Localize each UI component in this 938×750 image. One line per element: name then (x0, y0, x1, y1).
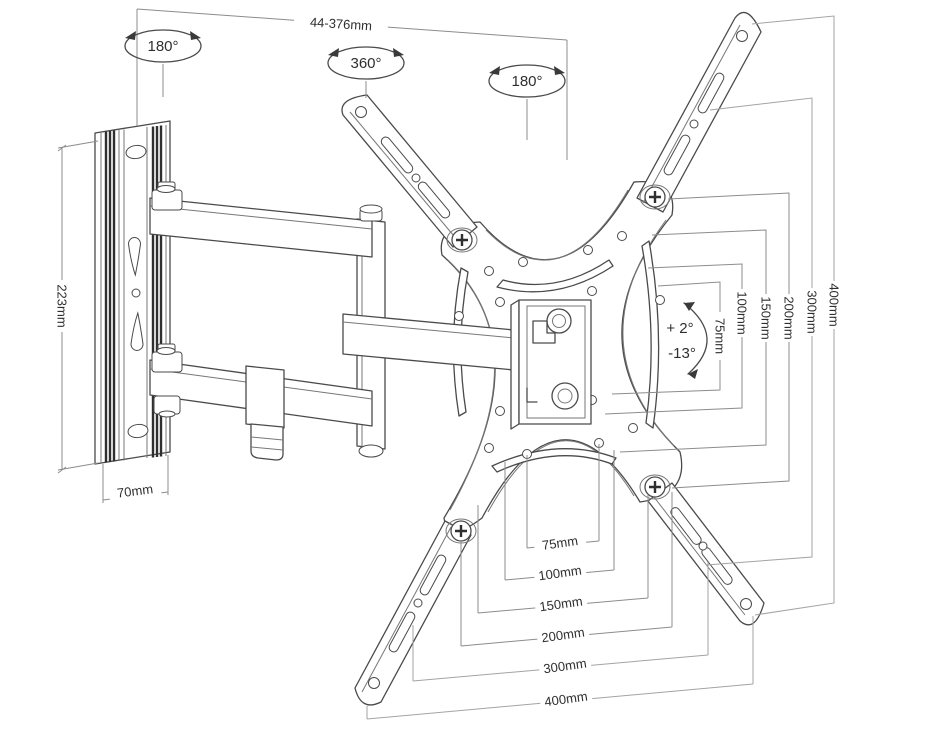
horizontal-dim-label: 150mm (538, 593, 583, 614)
tilt-head (511, 300, 591, 429)
horizontal-dim-label: 100mm (537, 562, 582, 583)
wall-plate-width-dimension: 70mm (103, 455, 168, 503)
vertical-dim-200: 200mm (668, 193, 797, 488)
rotation-symbol-center: 360° (328, 47, 404, 98)
tilt-angle-annotation: + 2° -13° (666, 302, 707, 379)
wall-plate-height-label: 223mm (55, 284, 70, 327)
horizontal-dim-label: 400mm (543, 688, 588, 709)
tilt-up-label: + 2° (666, 320, 693, 337)
screw (640, 475, 670, 499)
curved-slot-right (642, 241, 659, 428)
diagram-stage: 44-376mm 180° 360° 180° 223mm 70mm (0, 0, 938, 750)
tilt-knob-bottom (552, 383, 578, 409)
rotation-label-center: 360° (350, 55, 381, 72)
vertical-dim-label: 300mm (805, 290, 820, 333)
vertical-dim-label: 75mm (713, 318, 728, 354)
horizontal-dim-75: 75mm (527, 444, 599, 555)
vertical-dim-label: 200mm (782, 296, 797, 339)
vesa-vertical-dimensions: 75mm 100mm 150mm 200mm 300mm 400mm (605, 16, 842, 615)
extension-arm-top-right (637, 12, 761, 212)
tilt-knob-top (547, 309, 571, 333)
vertical-dim-label: 400mm (827, 283, 842, 326)
horizontal-dim-100: 100mm (505, 450, 614, 585)
horizontal-dim-label: 300mm (542, 655, 587, 676)
cable-clip (246, 366, 284, 460)
wall-plate-width-label: 70mm (116, 481, 154, 500)
arm-tip-hole (737, 31, 748, 42)
rotation-label-right: 180° (511, 73, 542, 90)
horizontal-dim-label: 200mm (540, 624, 585, 645)
screw (446, 519, 476, 543)
screw (640, 185, 670, 209)
rotation-symbol-left: 180° (125, 30, 201, 97)
top-depth-dimension: 44-376mm (137, 9, 567, 160)
wall-plate-height-dimension: 223mm (54, 141, 98, 473)
horizontal-dim-label: 75mm (541, 533, 579, 553)
arm-tip-hole (369, 678, 380, 689)
center-hole (132, 289, 140, 297)
upper-arm-bar (150, 198, 372, 257)
hinge-lower (154, 396, 180, 417)
link-bottom-cap (359, 445, 383, 457)
rotation-label-left: 180° (147, 38, 178, 55)
tv-mount-diagram: 44-376mm 180° 360° 180° 223mm 70mm (0, 0, 938, 750)
vertical-dim-label: 150mm (759, 296, 774, 339)
tilt-down-label: -13° (668, 345, 696, 362)
extension-arm-bottom-right (648, 483, 764, 625)
arm-tip-hole (356, 107, 367, 118)
rotation-symbol-right: 180° (489, 65, 565, 140)
horizontal-dim-150: 150mm (478, 495, 648, 616)
screw (447, 228, 477, 252)
vertical-dim-label: 100mm (735, 291, 750, 334)
arm-tip-hole (741, 599, 752, 610)
